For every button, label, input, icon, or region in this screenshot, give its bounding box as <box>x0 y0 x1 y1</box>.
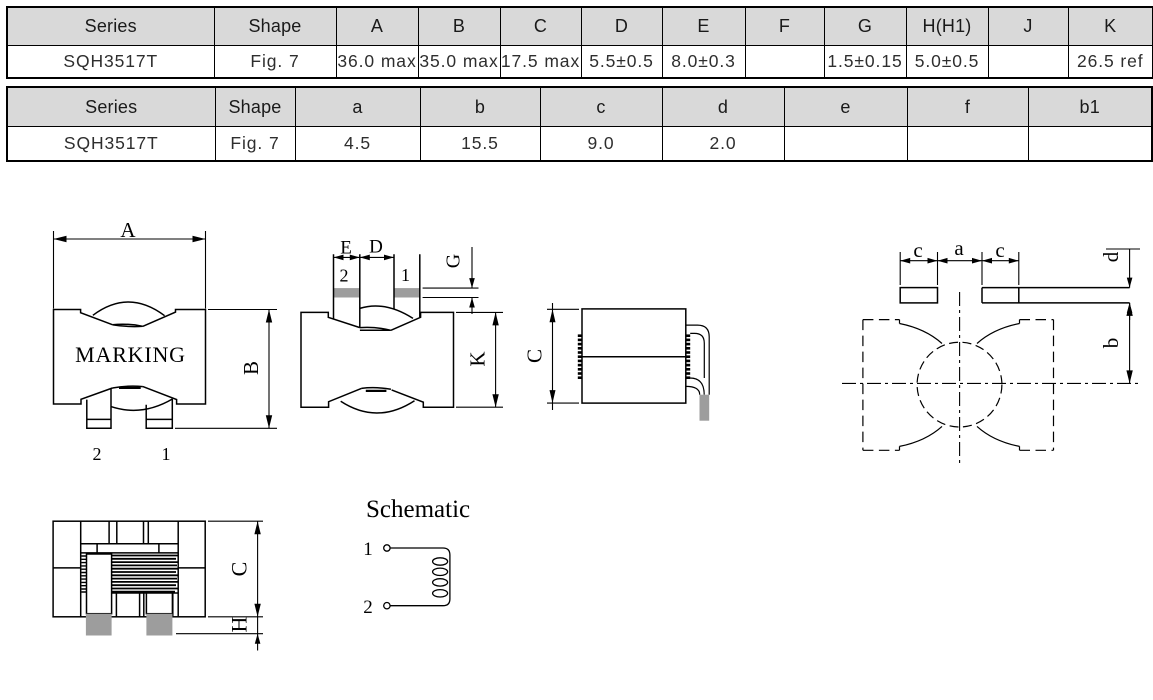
svg-text:B: B <box>239 361 263 375</box>
svg-text:H: H <box>227 616 252 632</box>
svg-text:d: d <box>1099 251 1123 262</box>
svg-text:b: b <box>1099 338 1123 349</box>
svg-text:c: c <box>913 238 922 262</box>
svg-text:C: C <box>523 349 547 363</box>
svg-text:2: 2 <box>340 266 349 286</box>
svg-text:1: 1 <box>363 539 373 560</box>
svg-text:K: K <box>466 351 490 366</box>
svg-text:Schematic: Schematic <box>366 496 470 523</box>
svg-text:1: 1 <box>162 444 171 464</box>
svg-text:1: 1 <box>401 265 410 285</box>
svg-text:2: 2 <box>93 444 102 464</box>
svg-text:a: a <box>954 236 964 260</box>
svg-text:D: D <box>369 237 383 258</box>
svg-text:c: c <box>995 238 1004 262</box>
svg-text:MARKING: MARKING <box>75 342 186 367</box>
svg-text:A: A <box>120 218 136 242</box>
svg-text:G: G <box>443 254 465 268</box>
svg-text:E: E <box>340 238 352 259</box>
svg-text:2: 2 <box>363 597 373 618</box>
svg-text:C: C <box>227 562 252 577</box>
